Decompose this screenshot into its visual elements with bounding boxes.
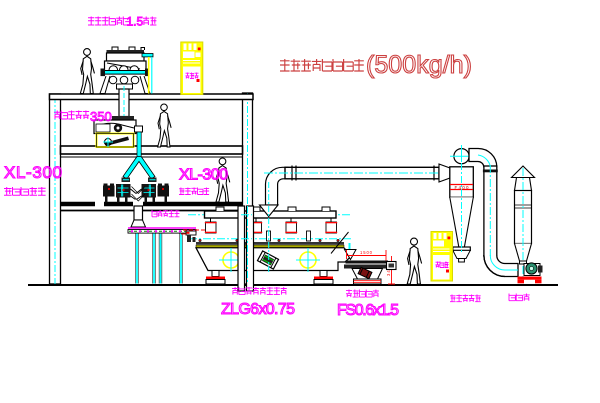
svg-text:1.5: 1.5 — [127, 15, 144, 29]
svg-text:(500kg/h): (500kg/h) — [366, 51, 472, 79]
svg-text:ZLG6x0.75: ZLG6x0.75 — [221, 301, 295, 318]
svg-text:XL-300: XL-300 — [179, 167, 228, 184]
svg-text:350: 350 — [90, 109, 112, 124]
svg-text:FS0.6x1.5: FS0.6x1.5 — [337, 302, 399, 319]
svg-text:XL-300: XL-300 — [4, 163, 62, 182]
svg-text:1500: 1500 — [360, 250, 373, 255]
